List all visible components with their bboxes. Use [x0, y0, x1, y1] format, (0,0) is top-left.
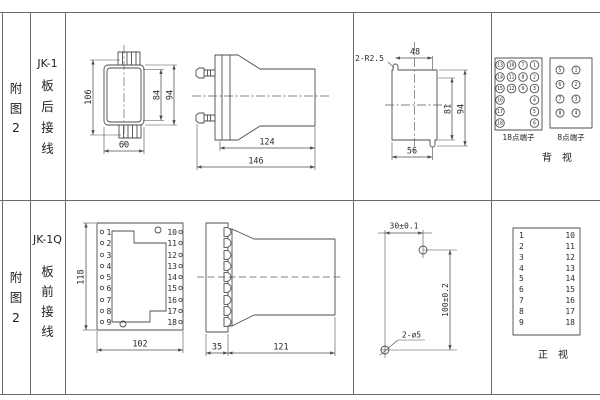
pin-number: 11	[167, 239, 177, 248]
terminal-pin: 7	[522, 63, 525, 69]
dim-81: 81	[444, 104, 454, 114]
terminal-18-block: 13 10 7 1 14 11 8 2 15 12 9 3 16 4 17 5 …	[495, 58, 542, 142]
dim-60: 60	[119, 141, 129, 151]
pin-number: 14	[565, 274, 575, 283]
pin-number: 6	[519, 285, 524, 294]
dim-146: 146	[248, 157, 263, 167]
wiring-label-top: 板 后 接 线	[30, 75, 65, 159]
pin-table: 110 211 312 413 514 615 716 817 918	[513, 228, 580, 335]
terminal-8-block: 5 1 6 2 7 3 8 4 8点端子	[550, 58, 592, 142]
terminal-pin: 5	[559, 68, 562, 74]
pin-number: 10	[167, 228, 177, 237]
dim-118: 118	[77, 269, 87, 284]
dim-56: 56	[407, 147, 417, 157]
dim-48: 48	[410, 48, 420, 58]
terminal-pin: 15	[497, 86, 503, 92]
pin-number: 2	[107, 239, 112, 248]
jk1-rear-outline: 106 84 94 60	[84, 45, 177, 154]
pin-number: 9	[519, 318, 524, 327]
terminal-pin: 2	[575, 82, 578, 88]
panel-cutout-outline: 48 2-R2.5 81 94 56	[355, 42, 468, 160]
wiring-char: 板	[30, 262, 65, 282]
terminal-pin: 6	[533, 121, 536, 127]
terminal-pin: 13	[497, 63, 503, 69]
wiring-label-bottom: 板 前 接 线	[30, 262, 65, 342]
terminal-pin: 3	[575, 97, 578, 103]
dim-124: 124	[259, 138, 274, 148]
rear-view-label: 背 视	[542, 151, 572, 164]
pin-number: 11	[565, 242, 575, 251]
pin-number: 14	[167, 273, 177, 282]
pin-number: 7	[107, 296, 112, 305]
pin-number: 17	[565, 307, 575, 316]
terminal-18-label: 18点端子	[502, 132, 535, 142]
mounting-screw-bottom	[196, 113, 204, 123]
fig-char: 图	[2, 288, 30, 308]
pin-number: 8	[107, 307, 112, 316]
terminal-pin: 14	[497, 75, 503, 81]
wiring-char: 线	[30, 322, 65, 342]
terminal-pin: 3	[533, 86, 536, 92]
terminal-pin: 9	[522, 86, 525, 92]
terminal-pin: 16	[497, 98, 503, 104]
model-label-jk1q: JK-1Q	[30, 233, 65, 246]
dim-30: 30±0.1	[390, 222, 419, 231]
drilling-plan-drawing: 30±0.1 100±0.2 2-ø5	[352, 200, 491, 394]
terminal-pin: 11	[509, 75, 515, 81]
dim-94-cutout: 94	[457, 104, 467, 114]
pin-number: 3	[107, 251, 112, 260]
panel-cutout-drawing: 48 2-R2.5 81 94 56	[352, 12, 491, 200]
radius-note: 2-R2.5	[355, 54, 384, 63]
terminal-pin: 18	[497, 121, 503, 127]
terminal-pin: 12	[509, 86, 515, 92]
pin-number: 13	[565, 264, 575, 273]
dim-100: 100±0.2	[441, 283, 450, 317]
wiring-char: 接	[30, 117, 65, 138]
pin-number: 18	[565, 318, 575, 327]
pin-number: 5	[107, 273, 112, 282]
pin-number: 7	[519, 296, 524, 305]
pin-number: 3	[519, 253, 524, 262]
dim-35: 35	[212, 343, 222, 353]
pin-number: 5	[519, 274, 524, 283]
pin-number: 13	[167, 262, 177, 271]
dim-84: 84	[153, 90, 163, 100]
technical-drawing-sheet: 附 图 2 JK-1 板 后 接 线 附 图 2 JK-1Q 板 前 接 线	[0, 0, 600, 400]
terminal-pin: 6	[559, 82, 562, 88]
wiring-char: 前	[30, 282, 65, 302]
jk1-side-view: 124 146	[192, 55, 330, 170]
pin-number: 12	[167, 251, 177, 260]
pin-number: 4	[107, 262, 112, 271]
pin-number: 10	[565, 231, 575, 240]
fig-char: 附	[2, 268, 30, 288]
front-view-label: 正 视	[538, 348, 568, 361]
fig-char: 2	[2, 308, 30, 328]
dim-121: 121	[273, 343, 288, 353]
wiring-char: 接	[30, 302, 65, 322]
terminal-pin: 5	[533, 109, 536, 115]
mounting-hole	[155, 227, 161, 233]
pin-number: 17	[167, 307, 177, 316]
terminal-pin: 10	[509, 63, 515, 69]
terminal-pin: 4	[575, 111, 578, 117]
terminal-pin: 8	[559, 111, 562, 117]
pin-number: 18	[167, 318, 177, 327]
fig-char: 图	[2, 99, 30, 119]
pin-table-drawing: 110 211 312 413 514 615 716 817 918 正 视	[488, 200, 600, 394]
pin-number: 1	[519, 231, 524, 240]
dim-102: 102	[132, 340, 147, 350]
fig-char: 附	[2, 79, 30, 99]
terminal-layouts-rear: 13 10 7 1 14 11 8 2 15 12 9 3 16 4 17 5 …	[488, 12, 600, 200]
pin-number: 16	[167, 296, 177, 305]
dim-94: 94	[166, 90, 176, 100]
pin-number: 12	[565, 253, 575, 262]
terminal-pin: 7	[559, 97, 562, 103]
jk1q-side-view: 35 121	[197, 223, 341, 356]
model-label-jk1: JK-1	[30, 57, 65, 70]
dim-106: 106	[84, 89, 94, 104]
terminal-pin: 2	[533, 75, 536, 81]
hole-note: 2-ø5	[402, 331, 421, 340]
wiring-char: 线	[30, 138, 65, 159]
terminal-pin: 4	[533, 98, 536, 104]
mounting-screw-top	[196, 68, 204, 78]
pin-number: 8	[519, 307, 524, 316]
terminal-pin: 8	[522, 75, 525, 81]
jk1q-front-view: 1 2 3 4 5 6 7 8 9 10 11 12 13 14 15 16 1…	[77, 223, 184, 353]
terminal-8-label: 8点端子	[557, 132, 585, 142]
fig-label-top: 附 图 2	[2, 79, 30, 138]
jk1-outline-drawings: 106 84 94 60 124	[64, 12, 352, 200]
pin-number: 6	[107, 284, 112, 293]
drilling-plan: 30±0.1 100±0.2 2-ø5	[378, 222, 457, 359]
pin-number: 15	[565, 285, 575, 294]
terminal-pin: 1	[575, 68, 578, 74]
pin-number: 16	[565, 296, 575, 305]
jk1q-drawings: 1 2 3 4 5 6 7 8 9 10 11 12 13 14 15 16 1…	[64, 200, 352, 394]
fig-label-bottom: 附 图 2	[2, 268, 30, 328]
terminal-pin: 1	[533, 63, 536, 69]
fig-char: 2	[2, 118, 30, 138]
pin-number: 1	[107, 228, 112, 237]
table-border-bottom	[0, 394, 600, 395]
wiring-char: 后	[30, 96, 65, 117]
pin-number: 15	[167, 284, 177, 293]
pin-number: 4	[519, 264, 524, 273]
pin-number: 2	[519, 242, 524, 251]
pin-number: 9	[107, 318, 112, 327]
table-border-left	[2, 12, 3, 394]
terminal-pin: 17	[497, 109, 503, 115]
wiring-char: 板	[30, 75, 65, 96]
